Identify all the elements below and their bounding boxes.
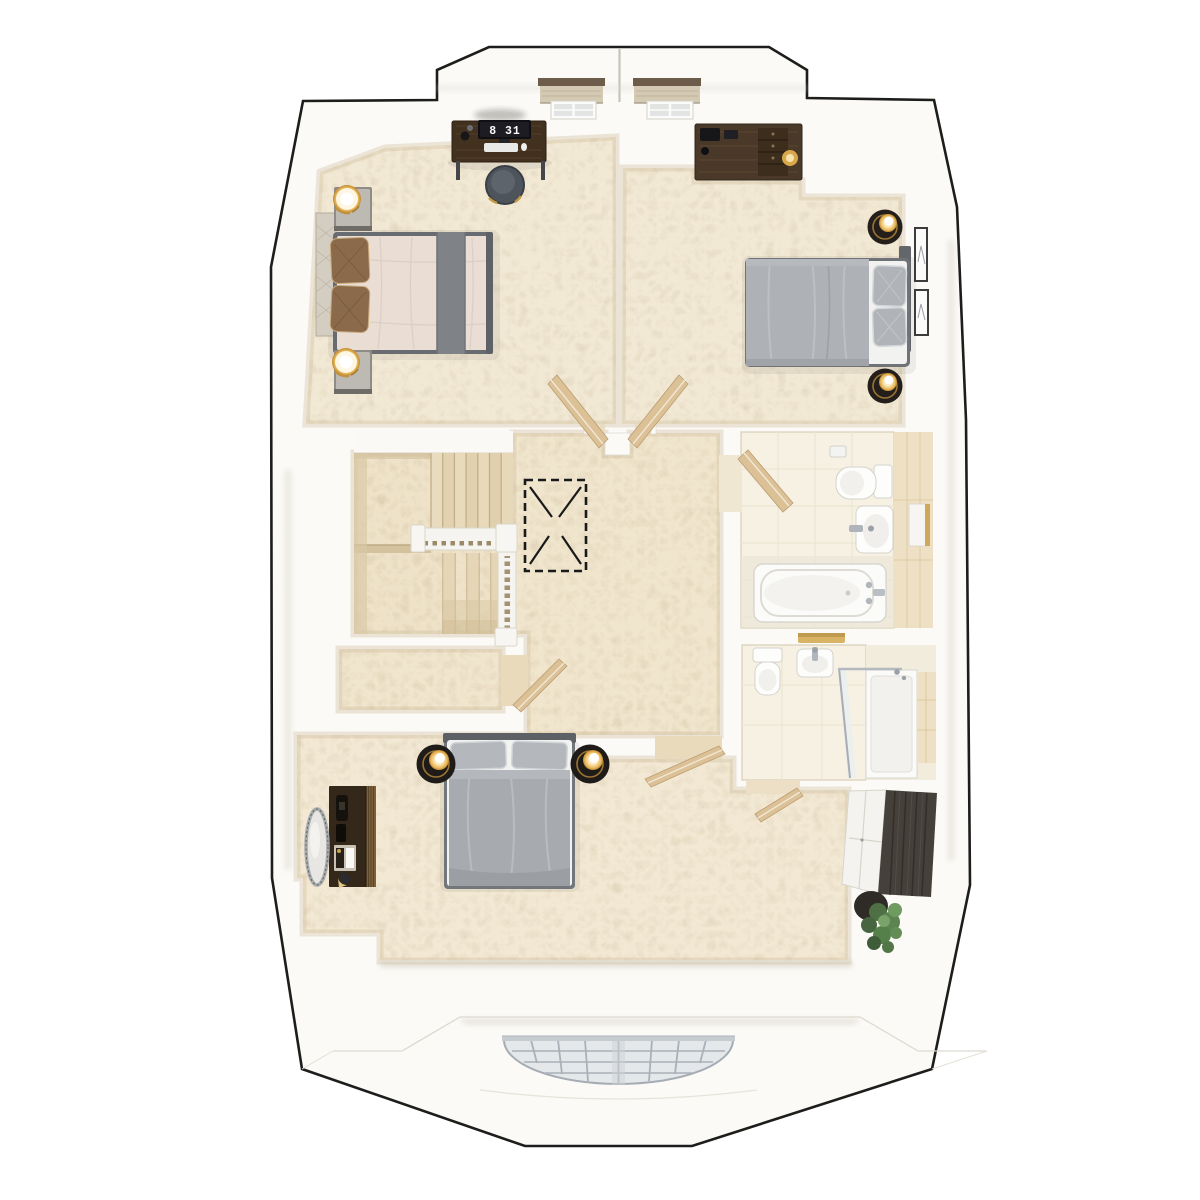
svg-text:8 31: 8 31 (489, 125, 521, 138)
